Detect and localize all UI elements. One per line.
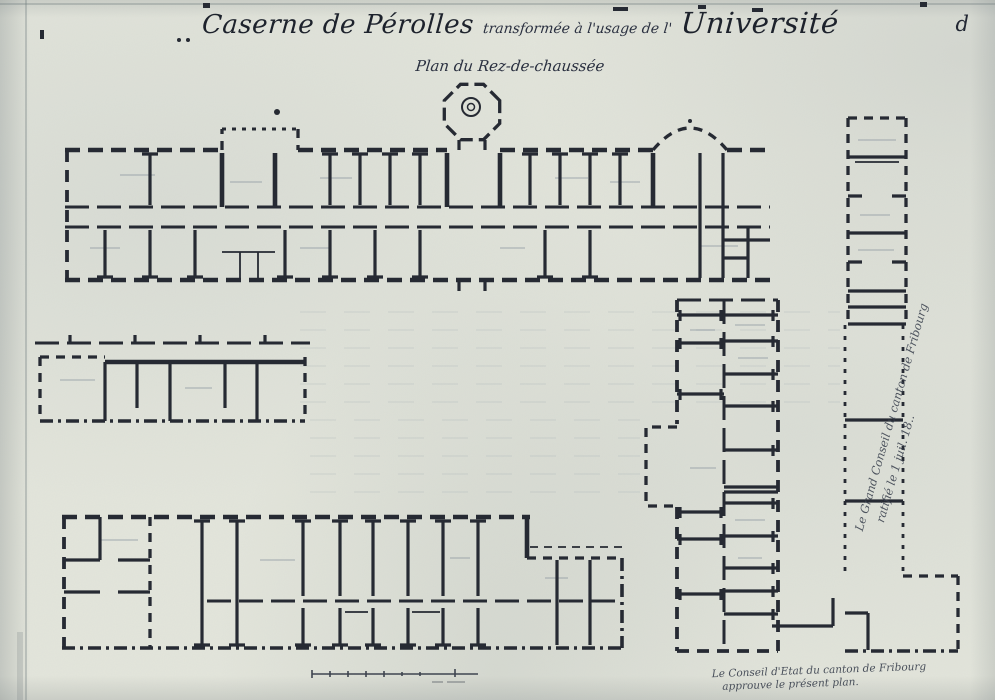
scanned-floor-plan-photo: Caserne de Pérolles transformée à l'usag… <box>0 0 995 700</box>
title-part-1: Caserne de Pérolles <box>201 10 475 40</box>
plate-letter: d <box>956 12 969 36</box>
drawing-title: Caserne de Pérolles transformée à l'usag… <box>255 6 785 40</box>
title-part-3: Université <box>679 6 839 40</box>
floor-plan-drawing <box>0 0 995 700</box>
title-part-2: transformée à l'usage de l' <box>482 21 673 37</box>
drawing-subtitle: Plan du Rez-de-chaussée <box>384 57 636 75</box>
